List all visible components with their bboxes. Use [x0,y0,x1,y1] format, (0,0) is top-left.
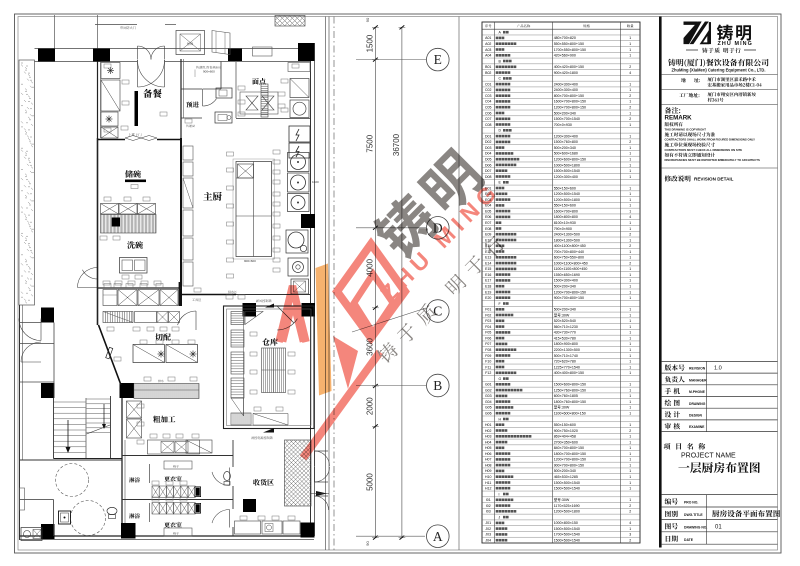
svg-text:900×600: 900×600 [244,259,256,263]
svg-text:700×700×800+440: 700×700×800+440 [554,250,584,254]
svg-text:1: 1 [629,331,631,335]
svg-text:F09: F09 [485,354,491,358]
svg-text:型号:30W: 型号:30W [554,405,570,410]
svg-text:1: 1 [629,458,631,462]
svg-text:C: C [499,77,502,81]
svg-text:C05: C05 [485,106,491,110]
svg-text:1: 1 [629,82,631,86]
svg-text:1: 1 [629,475,631,479]
svg-text:PRO NO.: PRO NO. [684,501,698,505]
svg-text:E17: E17 [485,279,491,283]
svg-text:D: D [499,129,502,133]
svg-text:D01: D01 [485,134,491,138]
svg-text:D04: D04 [485,152,491,156]
svg-text:1: 1 [629,423,631,427]
svg-text:2: 2 [629,429,631,433]
svg-text:1600×700×800: 1600×700×800 [554,209,578,213]
svg-text:1: 1 [629,360,631,364]
svg-text:1500×700×1540: 1500×700×1540 [554,117,580,121]
svg-text:E07: E07 [485,221,491,225]
svg-text:01: 01 [715,524,722,530]
svg-text:900×600: 900×600 [203,70,215,74]
svg-text:1: 1 [629,435,631,439]
svg-text:E18: E18 [485,284,491,288]
svg-text:430×730×770: 430×730×770 [554,331,576,335]
svg-text:2: 2 [629,94,631,98]
svg-text:1500×500×1540: 1500×500×1540 [554,481,580,485]
svg-text:1: 1 [629,250,631,254]
svg-text:1: 1 [629,227,631,231]
svg-text:1: 1 [629,123,631,127]
svg-text:B01: B01 [485,65,491,69]
svg-text:I01: I01 [486,498,491,502]
svg-text:E13: E13 [485,256,491,260]
svg-text:1200×300×400: 1200×300×400 [554,175,578,179]
svg-text:D07: D07 [485,169,491,173]
svg-text:型号:30W: 型号:30W [554,497,570,502]
svg-text:A: A [433,529,443,544]
svg-text:900×750×1020: 900×750×1020 [554,429,578,433]
svg-text:1: 1 [629,169,631,173]
svg-text:1200×700×800+150: 1200×700×800+150 [554,290,586,294]
svg-text:1: 1 [629,452,631,456]
svg-text:3: 3 [629,533,631,537]
svg-text:1225×770×1540: 1225×770×1540 [554,365,580,369]
svg-text:E16: E16 [485,273,491,277]
svg-text:500×200×340: 500×200×340 [554,284,576,288]
svg-text:1800×700×800+150: 1800×700×800+150 [554,452,586,456]
svg-text:2: 2 [629,106,631,110]
svg-text:1700×500×1540: 1700×500×1540 [554,533,580,537]
svg-text:790×0×900: 790×0×900 [554,227,572,231]
svg-text:D05: D05 [485,157,491,161]
svg-text:1: 1 [629,204,631,208]
svg-text:C01: C01 [485,82,491,86]
svg-text:REVISION DETAIL: REVISION DETAIL [694,177,734,182]
svg-text:1600: 1600 [312,180,319,184]
svg-text:H07: H07 [485,458,491,462]
svg-text:1: 1 [629,42,631,46]
svg-text:H: H [499,417,502,421]
svg-text:EXAMINE: EXAMINE [689,425,705,429]
svg-text:1200×300×400: 1200×300×400 [554,134,578,138]
svg-text:1: 1 [629,487,631,491]
svg-text:1: 1 [629,394,631,398]
svg-text:1: 1 [629,365,631,369]
svg-text:2: 2 [629,504,631,508]
svg-text:2: 2 [629,233,631,237]
svg-text:F02: F02 [485,313,491,317]
svg-text:G06: G06 [485,411,492,415]
svg-text:1200×500×1800: 1200×500×1800 [554,510,580,514]
svg-text:G: G [499,377,502,381]
svg-text:600×760×1805: 600×760×1805 [554,394,578,398]
svg-text:1: 1 [629,88,631,92]
svg-text:H05: H05 [485,446,491,450]
svg-text:2: 2 [629,510,631,514]
svg-text:H02: H02 [485,429,491,433]
svg-text:DESIGN: DESIGN [689,414,703,418]
svg-text:1: 1 [629,463,631,467]
svg-text:1: 1 [629,134,631,138]
svg-text:H03: H03 [485,435,491,439]
svg-text:500×200×340: 500×200×340 [554,111,576,115]
svg-text:C: C [433,304,442,319]
svg-text:500×200×340: 500×200×340 [554,146,576,150]
svg-text:1200×700×800+150: 1200×700×800+150 [554,106,586,110]
svg-text:1200×500×1800: 1200×500×1800 [554,198,580,202]
svg-text:2: 2 [629,117,631,121]
svg-text:C03: C03 [485,94,491,98]
svg-text:400×1100×800+450: 400×1100×800+450 [554,244,586,248]
svg-text:1500×760×800: 1500×760×800 [554,140,578,144]
svg-text:1: 1 [629,481,631,485]
svg-text:REVISION: REVISION [689,367,706,371]
svg-text:1: 1 [629,186,631,190]
svg-text:1200×500×1540: 1200×500×1540 [554,192,580,196]
svg-text:1: 1 [629,273,631,277]
svg-text:840×700×800+150: 840×700×800+150 [554,446,584,450]
svg-text:500×710×1740: 500×710×1740 [554,354,578,358]
svg-text:1: 1 [629,146,631,150]
svg-text:M.PHONE: M.PHONE [689,390,706,394]
svg-text:1200×700×800+150: 1200×700×800+150 [554,458,586,462]
svg-text:1: 1 [629,313,631,317]
svg-text:H11: H11 [485,481,491,485]
svg-text:J: J [499,515,501,519]
svg-text:E: E [434,52,442,67]
svg-text:REMARK: REMARK [665,115,693,122]
svg-text:500×600×1680: 500×600×1680 [554,152,578,156]
svg-text:A01: A01 [485,36,491,40]
svg-text:1: 1 [629,527,631,531]
svg-text:1: 1 [629,388,631,392]
svg-text:415×530×780: 415×530×780 [554,336,576,340]
svg-text:1: 1 [629,383,631,387]
svg-text:E15: E15 [485,267,491,271]
svg-text:500×200×340: 500×200×340 [554,469,576,473]
svg-text:F: F [499,302,501,306]
svg-text:H10: H10 [485,475,491,479]
svg-text:D06: D06 [485,163,491,167]
svg-text:1: 1 [629,469,631,473]
svg-text:C02: C02 [485,88,491,92]
svg-text:1: 1 [629,36,631,40]
svg-text:1: 1 [629,284,631,288]
svg-text:465×530×1285: 465×530×1285 [554,475,578,479]
svg-text:900×700×800+150: 900×700×800+150 [554,463,584,467]
svg-text:2700×350×600: 2700×350×600 [554,440,578,444]
svg-text:CONTRACTORS SHALL WORK FROM FI: CONTRACTORS SHALL WORK FROM FIGURED DIME… [665,138,756,142]
svg-text:90: 90 [365,17,370,22]
svg-text:2400×1300×500: 2400×1300×500 [554,233,580,237]
svg-text:2400×300×400: 2400×300×400 [554,88,578,92]
svg-text:2: 2 [629,539,631,543]
svg-text:CONTRACTORS MUST CHECK ALL DIM: CONTRACTORS MUST CHECK ALL DIMENSIONS ON… [665,148,743,152]
svg-text:1: 1 [629,175,631,179]
svg-text:1500×500×1540: 1500×500×1540 [554,527,580,531]
svg-text:1: 1 [629,209,631,213]
svg-text:C04: C04 [485,100,491,104]
svg-text:560×710×1230: 560×710×1230 [554,325,578,329]
svg-text:H06: H06 [485,452,491,456]
svg-text:1: 1 [629,308,631,312]
svg-text:E19: E19 [485,290,491,294]
svg-text:1000×500×1800: 1000×500×1800 [554,163,580,167]
svg-text:720×620×780: 720×620×780 [554,360,576,364]
svg-text:2: 2 [629,244,631,248]
svg-text:2200×1300×500: 2200×1300×500 [554,348,580,352]
svg-text:J03: J03 [485,533,491,537]
svg-text:400×420×800+150: 400×420×800+150 [554,65,584,69]
svg-text:E08: E08 [485,227,491,231]
svg-text:1: 1 [629,48,631,52]
svg-text:1: 1 [629,54,631,58]
svg-text:B: B [499,59,502,63]
svg-text:1: 1 [629,296,631,300]
svg-text:1500×500×1540: 1500×500×1540 [554,539,580,543]
svg-text:1170×525×1690: 1170×525×1690 [554,504,580,508]
svg-text:4: 4 [629,71,631,75]
svg-text:550×150×600: 550×150×600 [554,186,576,190]
svg-text:F12: F12 [485,371,491,375]
svg-text:550×550×800+150: 550×550×800+150 [554,42,584,46]
svg-text:500×200×340: 500×200×340 [554,308,576,312]
svg-text:1.0: 1.0 [714,366,722,372]
svg-text:D02: D02 [485,140,491,144]
svg-text:H12: H12 [485,487,491,491]
svg-text:550×150×600: 550×150×600 [554,204,576,208]
svg-text:1100×600×800+150: 1100×600×800+150 [554,411,586,415]
svg-text:700×0×930: 700×0×930 [554,123,572,127]
svg-text:4: 4 [629,215,631,219]
svg-text:1: 1 [629,267,631,271]
svg-text:1: 1 [629,348,631,352]
svg-text:1: 1 [629,406,631,410]
svg-text:900×420×1800: 900×420×1800 [554,71,578,75]
svg-text:F11: F11 [485,365,491,369]
svg-text:480×700×820: 480×700×820 [554,36,576,40]
svg-text:G01: G01 [485,383,492,387]
svg-text:1: 1 [629,440,631,444]
svg-text:THIS DRAWING IS COPYRIGHT: THIS DRAWING IS COPYRIGHT [665,127,707,131]
svg-text:G04: G04 [485,400,492,404]
svg-text:DISCREPANCIES MUST BE REPORTED: DISCREPANCIES MUST BE REPORTED IMMEDIATE… [665,158,760,162]
svg-text:1: 1 [629,198,631,202]
svg-text:420×560×900: 420×560×900 [554,54,576,58]
svg-text:90: 90 [365,541,370,546]
svg-text:J02: J02 [485,527,491,531]
svg-text:1100×1100×800+450: 1100×1100×800+450 [554,267,588,271]
svg-text:F07: F07 [485,342,491,346]
svg-text:1800×800×800: 1800×800×800 [554,215,578,219]
svg-text:F03: F03 [485,319,491,323]
svg-text:1: 1 [629,152,631,156]
svg-text:H09: H09 [485,469,491,473]
svg-text:F05: F05 [485,331,491,335]
svg-text:36700: 36700 [392,133,401,156]
svg-text:DRAWING: DRAWING [689,402,706,406]
svg-text:G05: G05 [485,406,492,410]
svg-text:2: 2 [629,140,631,144]
svg-text:7500: 7500 [366,134,375,152]
svg-text:G02: G02 [485,388,492,392]
svg-text:DATE: DATE [684,538,694,542]
svg-text:D03: D03 [485,146,491,150]
svg-text:G03: G03 [485,394,492,398]
svg-text:F08: F08 [485,348,491,352]
svg-text:C06: C06 [485,111,491,115]
svg-text:E06: E06 [485,215,491,219]
svg-text:1: 1 [629,157,631,161]
svg-text:1: 1 [629,371,631,375]
svg-text:1: 1 [629,354,631,358]
svg-text:1250×760×800+150: 1250×760×800+150 [554,388,586,392]
svg-text:2: 2 [629,65,631,69]
svg-text:1: 1 [629,446,631,450]
svg-text:1: 1 [629,325,631,329]
svg-text:A04: A04 [485,54,491,58]
svg-text:1550×650×1690: 1550×650×1690 [554,273,580,277]
svg-text:1700×550×800+150: 1700×550×800+150 [554,48,586,52]
svg-text:1000×1100×800+450: 1000×1100×800+450 [554,261,588,265]
svg-text:1800×1300×500: 1800×1300×500 [554,238,580,242]
svg-text:E09: E09 [485,233,491,237]
svg-text:1500×500×1540: 1500×500×1540 [554,487,580,491]
svg-text:J04: J04 [485,539,491,543]
svg-text:A: A [499,30,502,34]
svg-text:800×700×800+150: 800×700×800+150 [554,94,584,98]
svg-text:1500×300×400: 1500×300×400 [554,279,578,283]
svg-text:400×400×800+150: 400×400×800+150 [554,371,584,375]
svg-text:H01: H01 [485,423,491,427]
svg-text:F06: F06 [485,336,491,340]
svg-text:ZHU MING: ZHU MING [718,41,753,47]
svg-text:DWG.TITLE: DWG.TITLE [684,513,703,517]
svg-text:型号:30W: 型号:30W [554,312,570,317]
svg-text:F04: F04 [485,325,491,329]
svg-text:E20: E20 [485,296,491,300]
svg-text:1: 1 [629,498,631,502]
svg-text:550×150×600: 550×150×600 [554,423,576,427]
svg-text:600×750×550+800: 600×750×550+800 [554,256,584,260]
svg-text:1500×500×1540: 1500×500×1540 [554,169,580,173]
svg-text:MANAGER: MANAGER [689,378,707,382]
svg-text:1500×600×800+150: 1500×600×800+150 [554,383,586,387]
svg-text:F01: F01 [485,308,491,312]
svg-text:4: 4 [629,521,631,525]
svg-text:1: 1 [629,279,631,283]
svg-text:ZhuMing (XiaMen) Catering Equi: ZhuMing (XiaMen) Catering Equipment Co.,… [671,68,765,73]
svg-text:A02: A02 [485,42,491,46]
svg-text:900×700×800+150: 900×700×800+150 [554,296,584,300]
svg-text:1600×700×800+150: 1600×700×800+150 [554,100,586,104]
svg-text:8100×10×930: 8100×10×930 [554,221,576,225]
svg-text:2: 2 [629,261,631,265]
svg-text:PROJECT NAME: PROJECT NAME [681,453,736,460]
svg-text:1: 1 [629,163,631,167]
svg-text:C07: C07 [485,117,491,121]
svg-text:F10: F10 [485,360,491,364]
svg-text:1500: 1500 [366,34,375,52]
svg-text:B: B [433,378,442,393]
svg-text:1000×800×150: 1000×800×150 [554,521,578,525]
svg-text:1: 1 [629,100,631,104]
svg-text:2000: 2000 [366,397,375,415]
svg-text:C08: C08 [485,123,491,127]
svg-text:I02: I02 [486,504,491,508]
svg-text:I03: I03 [486,510,491,514]
svg-text:1: 1 [629,256,631,260]
svg-text:E14: E14 [485,261,491,265]
svg-text:A03: A03 [485,48,491,52]
svg-text:1800×760×800+150: 1800×760×800+150 [554,400,586,404]
svg-text:5000: 5000 [366,473,375,491]
svg-text:1: 1 [629,336,631,340]
svg-text:1: 1 [629,411,631,415]
svg-text:520×520×540: 520×520×540 [554,319,576,323]
svg-text:869×404×458: 869×404×458 [554,435,576,439]
svg-text:1: 1 [629,192,631,196]
svg-text:1: 1 [629,238,631,242]
svg-text:1: 1 [629,342,631,346]
svg-text:1800×900×800: 1800×900×800 [554,342,578,346]
svg-text:H04: H04 [485,440,491,444]
svg-text:H08: H08 [485,463,491,467]
svg-text:B02: B02 [485,71,491,75]
svg-text:1: 1 [629,319,631,323]
svg-text:1: 1 [629,221,631,225]
svg-text:2400×300×400: 2400×300×400 [554,82,578,86]
svg-text:1: 1 [629,111,631,115]
svg-text:DRAWING NO.: DRAWING NO. [684,525,707,529]
svg-text:1200×600×800+150: 1200×600×800+150 [554,157,586,161]
svg-text:1: 1 [629,400,631,404]
svg-text:I: I [499,492,500,496]
svg-text:E: E [499,181,502,185]
svg-text:1: 1 [629,290,631,294]
svg-text:J01: J01 [485,521,491,525]
